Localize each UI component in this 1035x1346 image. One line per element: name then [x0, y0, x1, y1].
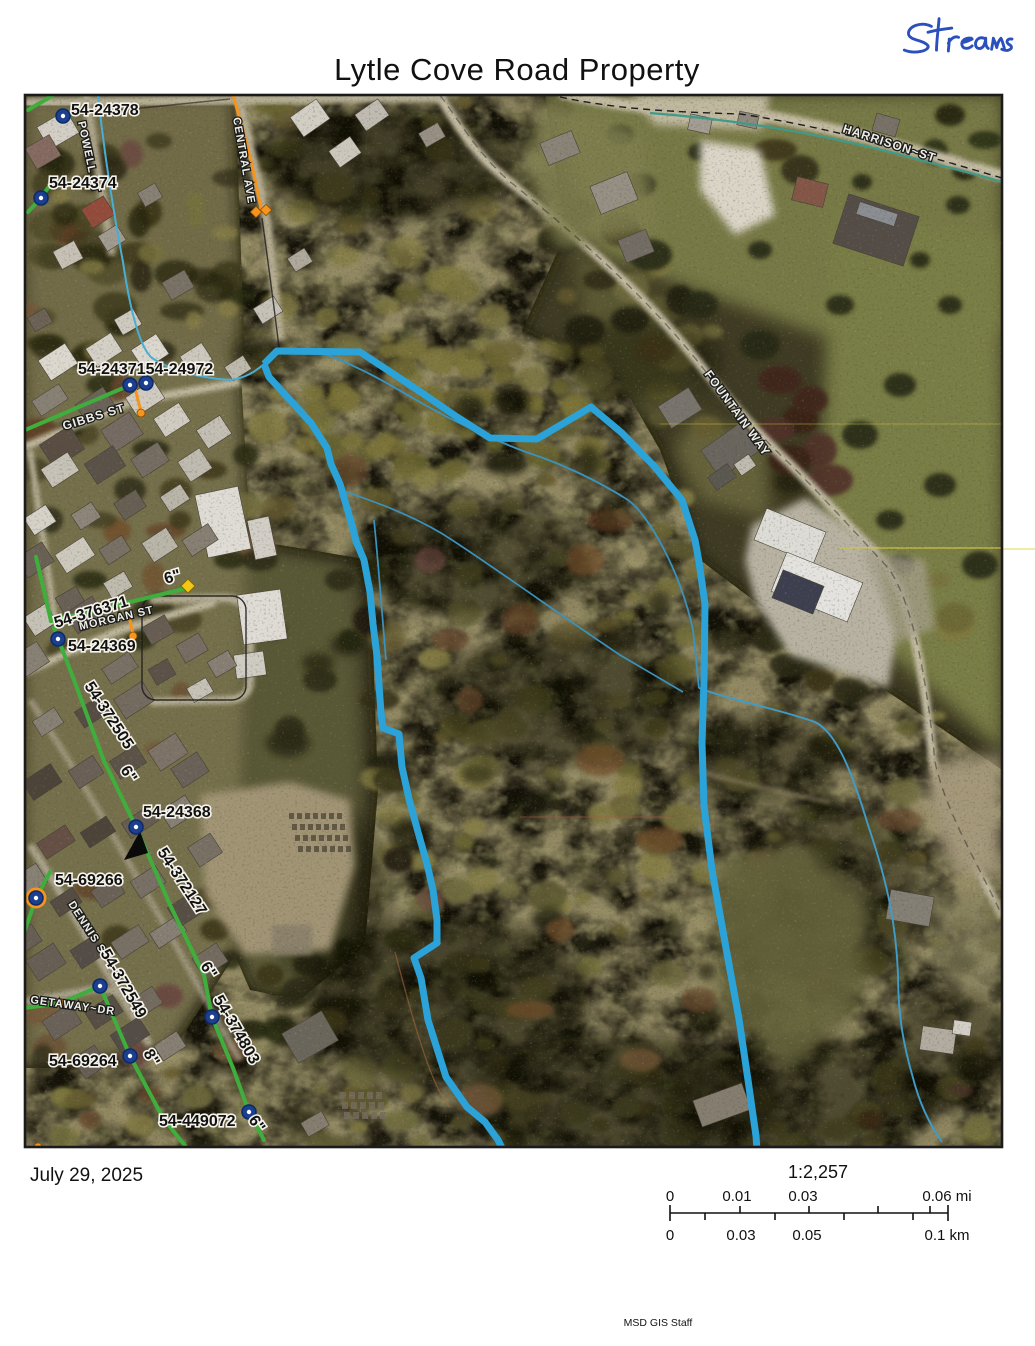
svg-text:54-449072: 54-449072 — [159, 1113, 236, 1130]
svg-text:0.06 mi: 0.06 mi — [922, 1188, 971, 1205]
svg-text:54-24378: 54-24378 — [71, 102, 139, 119]
svg-text:54-2437154-24972: 54-2437154-24972 — [78, 361, 213, 378]
svg-text:54-24368: 54-24368 — [143, 804, 211, 821]
svg-text:54-69264: 54-69264 — [49, 1053, 117, 1070]
svg-text:MSD GIS Staff: MSD GIS Staff — [624, 1317, 693, 1329]
svg-text:0.03: 0.03 — [788, 1188, 817, 1205]
svg-text:54-69266: 54-69266 — [55, 872, 123, 889]
svg-text:54-24374: 54-24374 — [49, 175, 117, 192]
svg-text:Lytle Cove Road Property: Lytle Cove Road Property — [334, 52, 700, 87]
svg-text:0.01: 0.01 — [722, 1188, 751, 1205]
svg-text:0.05: 0.05 — [792, 1227, 821, 1244]
svg-text:July 29, 2025: July 29, 2025 — [30, 1165, 143, 1186]
svg-text:0: 0 — [666, 1188, 674, 1205]
svg-text:54-24369: 54-24369 — [68, 638, 136, 655]
svg-text:1:2,257: 1:2,257 — [788, 1162, 848, 1182]
svg-text:0: 0 — [666, 1227, 674, 1244]
svg-text:0.03: 0.03 — [726, 1227, 755, 1244]
svg-text:0.1 km: 0.1 km — [924, 1227, 969, 1244]
